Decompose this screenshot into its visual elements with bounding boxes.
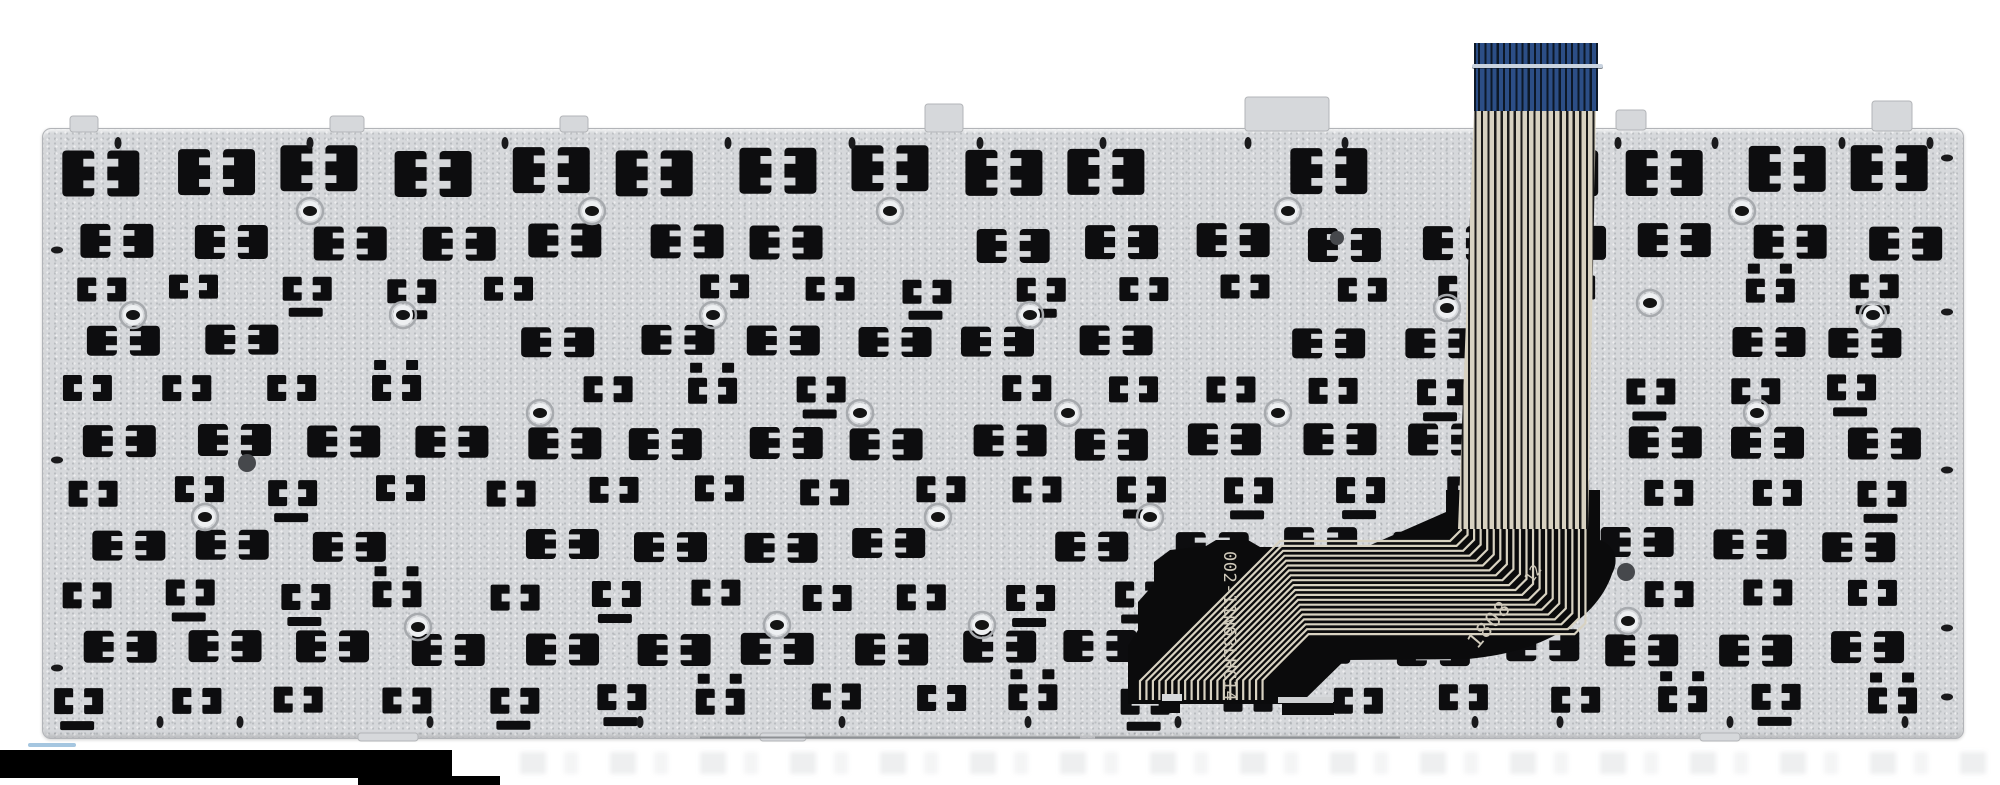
flex-notch [1278,697,1333,703]
blue-dash-mark [28,743,76,747]
flex-tab [1160,702,1180,713]
flex-notch [1162,694,1182,701]
ribbon-stiffener-line [1472,64,1603,68]
watermark-bar-notch [358,776,500,785]
ribbon-cable-blue-header [1474,43,1598,111]
flex-circuit: 002-11N63LHC14 1808 12 [0,0,2000,785]
part-number-text: 002-11N63LHC14 [1219,551,1239,701]
ribbon-cable [1457,111,1598,529]
watermark-bar [0,750,452,778]
product-photo: 002-11N63LHC14 1808 12 [0,0,2000,785]
flex-tab [1282,702,1334,715]
